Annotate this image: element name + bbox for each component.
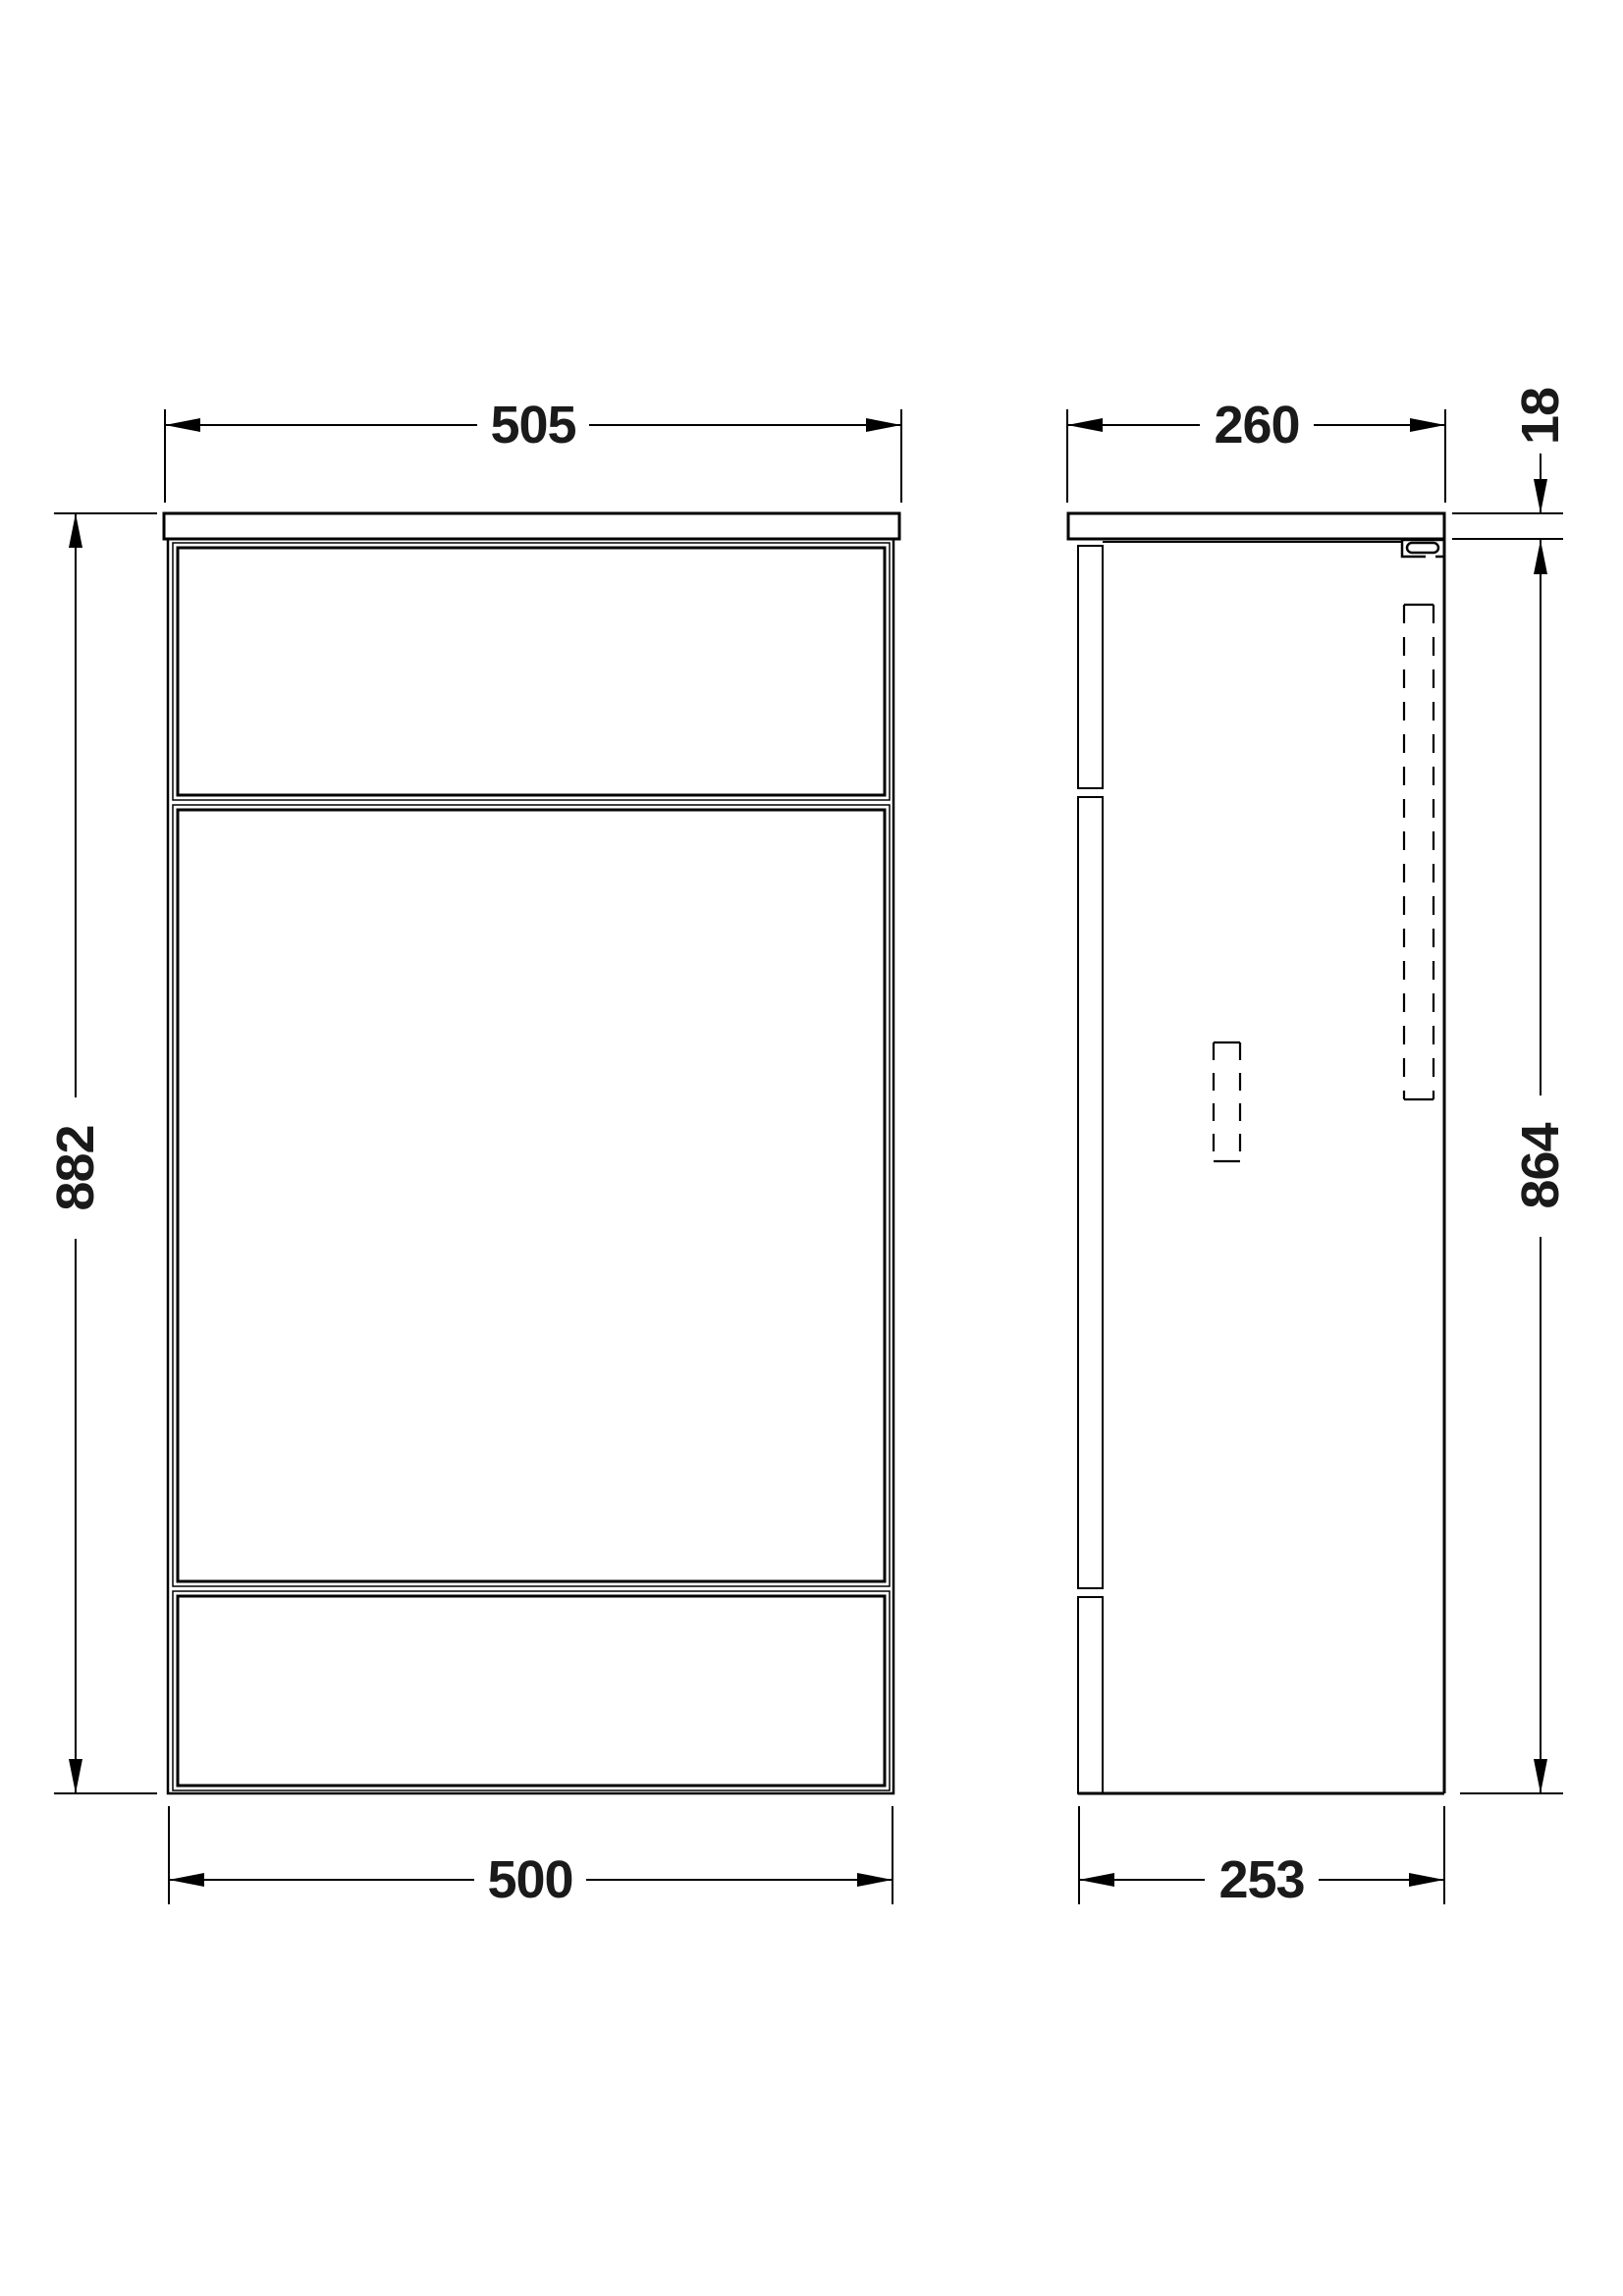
front-door-panel — [173, 805, 890, 1586]
front-cistern-panel — [173, 543, 890, 800]
side-hinge-dashed-tall — [1404, 605, 1434, 1099]
dimension-side-top-depth: 260 — [1067, 396, 1445, 503]
side-fixing-bracket — [1402, 540, 1445, 557]
side-view — [1068, 513, 1445, 1793]
label-253: 253 — [1218, 1850, 1304, 1909]
label-864: 864 — [1511, 1122, 1570, 1208]
side-fixing-dashed-small — [1214, 1042, 1240, 1161]
front-plinth-panel — [173, 1591, 890, 1790]
dimension-front-bottom-width: 500 — [169, 1806, 893, 1909]
front-worktop — [164, 513, 899, 539]
front-cabinet-outline — [168, 539, 893, 1793]
label-18: 18 — [1511, 388, 1570, 445]
label-500: 500 — [487, 1850, 572, 1909]
side-worktop — [1068, 513, 1444, 539]
label-882: 882 — [46, 1125, 105, 1210]
wc-unit-technical-drawing: 505 260 18 882 864 — [0, 0, 1623, 2296]
side-back-panel — [1078, 546, 1103, 1793]
dimension-front-top-width: 505 — [165, 396, 901, 503]
label-505: 505 — [490, 396, 575, 454]
dimension-side-height: 864 — [1460, 539, 1570, 1793]
bracket-slot — [1407, 543, 1438, 553]
dimension-worktop-thickness: 18 — [1452, 388, 1570, 574]
technical-drawing-page: 505 260 18 882 864 — [0, 0, 1623, 2296]
label-260: 260 — [1214, 396, 1299, 454]
dimension-front-height: 882 — [46, 513, 157, 1793]
dimension-side-bottom-depth: 253 — [1079, 1806, 1444, 1909]
front-view — [164, 513, 899, 1793]
